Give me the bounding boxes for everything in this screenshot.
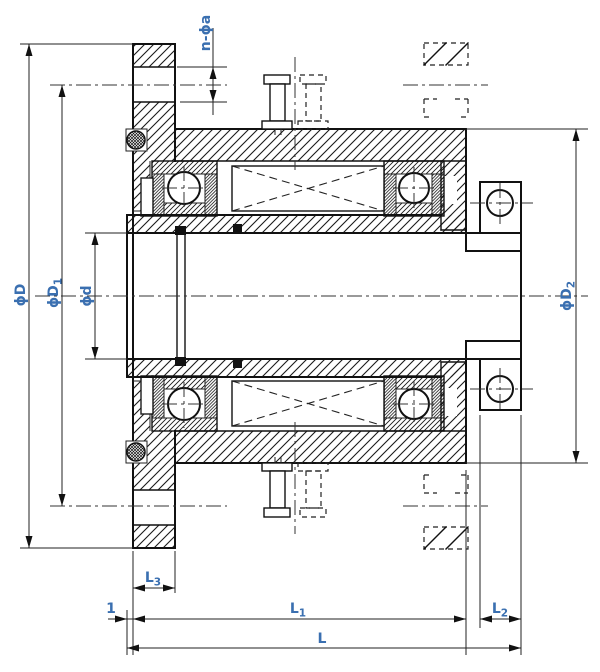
label-1: 1 <box>106 601 116 617</box>
seal-carrier-lower <box>141 376 153 414</box>
label-L: L <box>318 631 327 647</box>
label-phi-D1: ϕD1 <box>46 278 65 308</box>
seal-carrier-upper <box>141 178 153 216</box>
label-L3: L3 <box>145 570 161 589</box>
label-L2: L2 <box>492 601 508 620</box>
grease-plug-bottom-front <box>262 457 292 517</box>
bearing-lower-left <box>152 376 217 431</box>
housing-hatch-top <box>175 129 466 161</box>
bearing-lower-right <box>384 376 444 431</box>
spacer-sleeve-upper <box>232 166 384 211</box>
grease-plug-bottom-hidden <box>298 463 328 517</box>
technical-drawing: ϕD ϕD1 ϕd ϕD2 n-ϕa L3 1 L1 L2 L <box>0 0 600 672</box>
grease-plug-top-front <box>262 75 292 135</box>
label-phi-d: ϕd <box>79 285 95 306</box>
endwall-notch-bottom <box>444 388 457 416</box>
endwall-notch-top <box>444 176 457 204</box>
flange-hatch-top <box>133 44 175 67</box>
grease-plug-top-hidden <box>298 75 328 129</box>
label-phi-D: ϕD <box>13 284 29 307</box>
o-ring-lower <box>126 441 147 463</box>
bearing-upper-right <box>384 161 444 216</box>
housing-hatch-bottom <box>175 431 466 463</box>
label-L1: L1 <box>290 601 306 620</box>
hidden-bolt-bottom <box>403 475 488 549</box>
label-phi-D2: ϕD2 <box>559 281 578 311</box>
o-ring-upper <box>126 129 147 151</box>
bearing-upper-left <box>152 161 217 216</box>
flange-hatch-bottom <box>133 525 175 548</box>
hidden-bolt-top <box>403 43 488 117</box>
label-n-phi-a: n-ϕa <box>198 15 214 51</box>
spacer-sleeve-lower <box>232 381 384 426</box>
